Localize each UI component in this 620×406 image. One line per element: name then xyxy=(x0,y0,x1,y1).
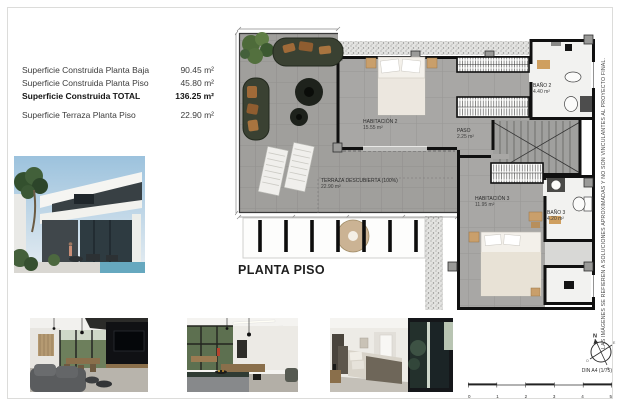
room-label-terraza: TERRAZA DESCUBIERTA (100%) 22.90 m² xyxy=(321,178,441,190)
sofa-left xyxy=(243,78,269,140)
paper-scale-label: DIN A4 (1/75) xyxy=(468,368,612,374)
room-label-bano2: BAÑO 2 4.40 m² xyxy=(533,83,577,95)
page-title: PLANTA PISO xyxy=(238,263,325,277)
room-area: 4.20 m² xyxy=(547,216,591,222)
sofa-top xyxy=(273,38,343,66)
surface-label: Superficie Construida TOTAL xyxy=(22,90,162,103)
scale-bar-graphic xyxy=(468,382,612,388)
room-area: 4.40 m² xyxy=(533,89,577,95)
gravel-strip-right xyxy=(425,216,443,310)
kitchen-dining-render xyxy=(187,318,298,392)
room-label-habitacion3: HABITACIÓN 3 11.95 m² xyxy=(475,196,539,208)
surface-label: Superficie Construida Planta Piso xyxy=(22,77,162,90)
surface-label: Superficie Construida Planta Baja xyxy=(22,64,162,77)
scale-bar: DIN A4 (1/75) 0 1 2 3 4 5 xyxy=(468,368,612,399)
room-label-habitacion2: HABITACIÓN 2 15.55 m² xyxy=(363,119,435,131)
compass-n-label: N xyxy=(593,334,597,340)
table-row: Superficie Construida Planta Piso 45.80 … xyxy=(22,77,214,90)
gravel-strip-top xyxy=(340,41,529,55)
scale-tick: 2 xyxy=(525,394,528,399)
table-row-total: Superficie Construida TOTAL 136.25 m² xyxy=(22,90,214,103)
scale-tick: 3 xyxy=(553,394,556,399)
surface-label: Superficie Terraza Planta Piso xyxy=(22,109,162,122)
surface-value: 90.45 m² xyxy=(162,64,214,77)
scale-tick: 4 xyxy=(581,394,584,399)
pergola xyxy=(243,218,425,258)
washer-symbol xyxy=(564,281,574,289)
scale-tick: 0 xyxy=(468,394,471,399)
room-label-bano3: BAÑO 3 4.20 m² xyxy=(547,210,591,222)
plan-sheet: Superficie Construida Planta Baja 90.45 … xyxy=(0,0,620,406)
surface-area-table: Superficie Construida Planta Baja 90.45 … xyxy=(22,64,214,122)
table-row: Superficie Construida Planta Baja 90.45 … xyxy=(22,64,214,77)
compass-rose: N E S O xyxy=(583,332,619,370)
room-area: 15.55 m² xyxy=(363,125,435,131)
room-area: 22.90 m² xyxy=(321,184,441,190)
house-exterior-render xyxy=(14,156,145,273)
living-room-render xyxy=(30,318,148,392)
surface-value: 45.80 m² xyxy=(162,77,214,90)
scale-tick: 1 xyxy=(496,394,499,399)
table-row: Superficie Terraza Planta Piso 22.90 m² xyxy=(22,109,214,122)
compass-e-label: E xyxy=(613,341,616,345)
room-label-paso: PASO 2.25 m² xyxy=(457,128,497,140)
compass-o-label: O xyxy=(586,359,589,363)
person-figure xyxy=(69,242,73,256)
room-area: 11.95 m² xyxy=(475,202,539,208)
scale-tick: 5 xyxy=(609,394,612,399)
surface-value: 136.25 m² xyxy=(162,90,214,103)
bedroom-render xyxy=(330,318,453,392)
scale-tick-labels: 0 1 2 3 4 5 xyxy=(468,394,612,399)
surface-value: 22.90 m² xyxy=(162,109,214,122)
room-area: 2.25 m² xyxy=(457,134,497,140)
